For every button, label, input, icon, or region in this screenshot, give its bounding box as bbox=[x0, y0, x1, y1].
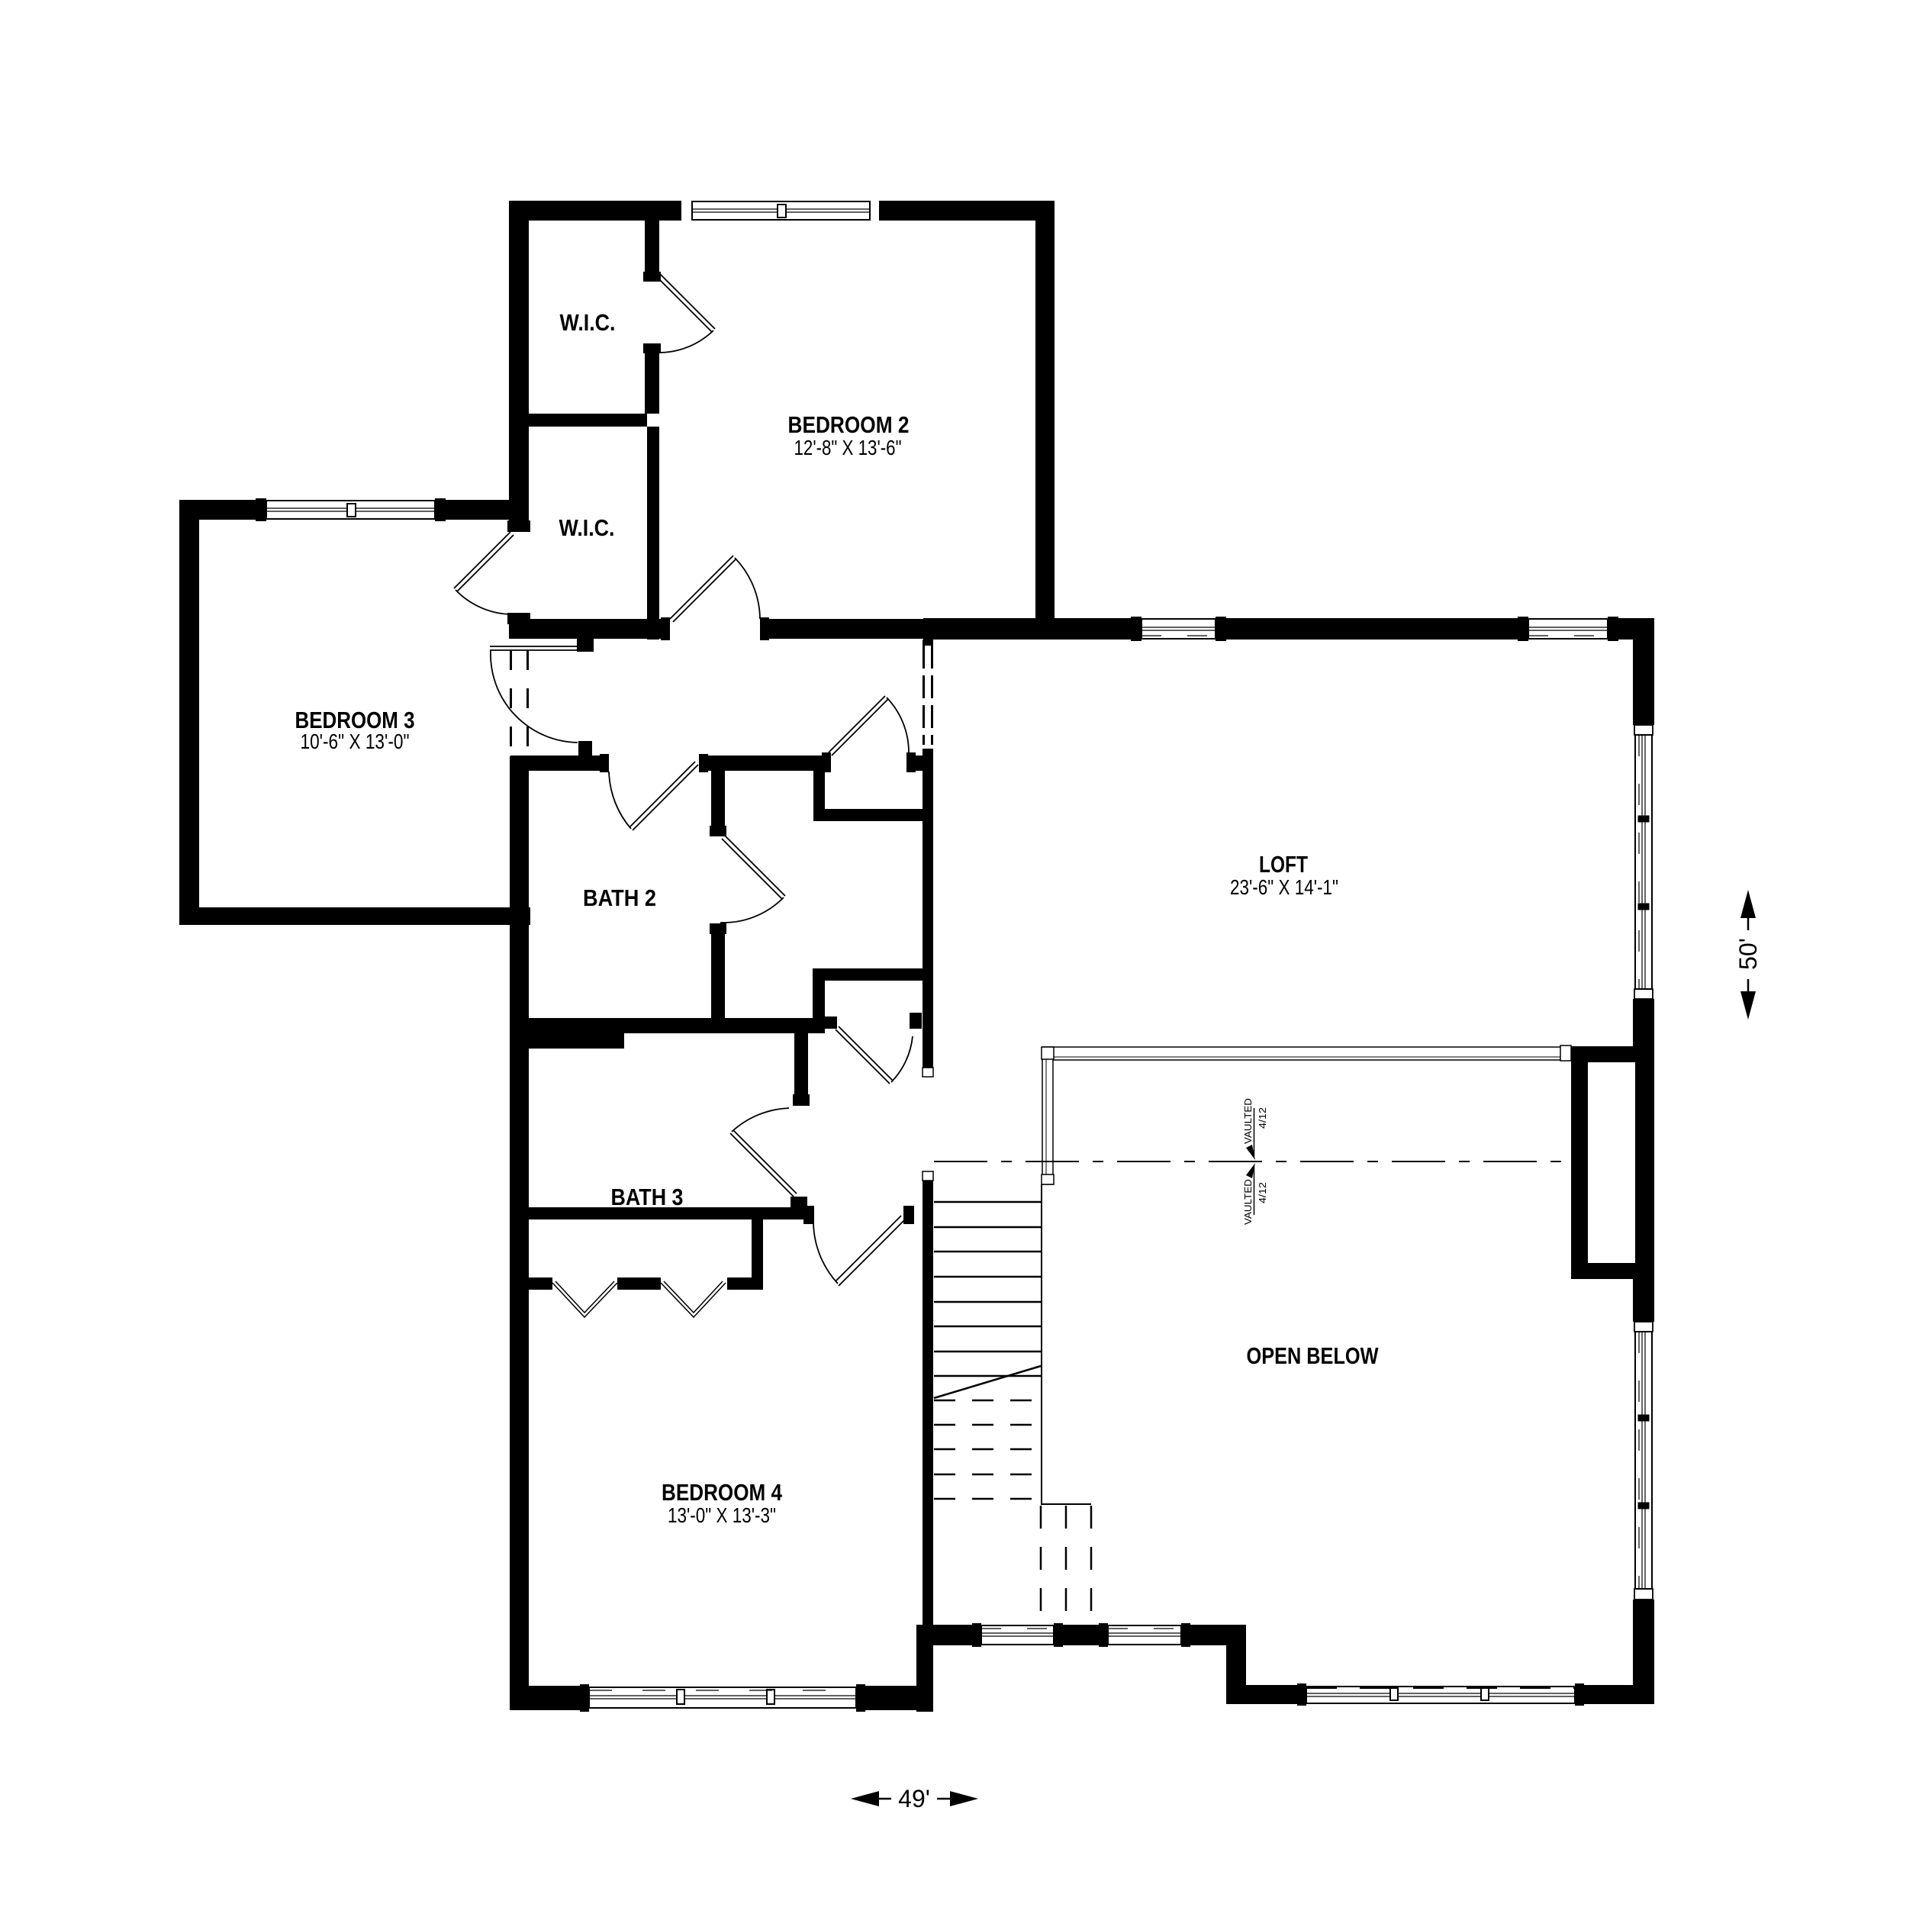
svg-text:LOFT: LOFT bbox=[1259, 851, 1308, 878]
svg-text:W.I.C.: W.I.C. bbox=[559, 514, 615, 541]
svg-text:4/12: 4/12 bbox=[1257, 1182, 1268, 1203]
svg-text:13'-0" X 13'-3": 13'-0" X 13'-3" bbox=[668, 1503, 776, 1527]
svg-text:BEDROOM 4: BEDROOM 4 bbox=[662, 1479, 783, 1506]
svg-text:49': 49' bbox=[898, 1785, 930, 1812]
svg-text:10'-6" X 13'-0": 10'-6" X 13'-0" bbox=[301, 730, 410, 753]
svg-text:BEDROOM 2: BEDROOM 2 bbox=[788, 411, 910, 438]
svg-text:VAULTED: VAULTED bbox=[1242, 1179, 1254, 1225]
svg-text:BATH 3: BATH 3 bbox=[611, 1184, 684, 1210]
svg-text:12'-8" X 13'-6": 12'-8" X 13'-6" bbox=[794, 436, 902, 459]
svg-text:W.I.C.: W.I.C. bbox=[560, 309, 616, 336]
svg-text:50': 50' bbox=[1734, 938, 1762, 970]
svg-text:23'-6" X 14'-1": 23'-6" X 14'-1" bbox=[1230, 875, 1338, 899]
svg-text:4/12: 4/12 bbox=[1257, 1107, 1268, 1129]
svg-text:VAULTED: VAULTED bbox=[1242, 1098, 1254, 1144]
svg-text:BATH 2: BATH 2 bbox=[583, 884, 656, 911]
svg-text:OPEN BELOW: OPEN BELOW bbox=[1247, 1342, 1380, 1369]
